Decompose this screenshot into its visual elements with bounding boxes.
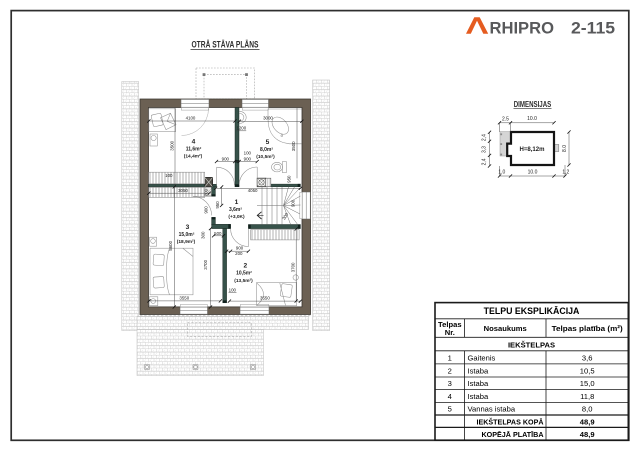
svg-text:10.0: 10.0: [527, 116, 537, 122]
svg-text:48,9: 48,9: [580, 417, 595, 426]
svg-text:3700: 3700: [203, 259, 208, 269]
svg-text:5: 5: [266, 139, 270, 146]
svg-text:900: 900: [222, 156, 230, 161]
svg-text:(+3,0K): (+3,0K): [228, 214, 245, 220]
svg-text:10,5m²: 10,5m²: [236, 271, 252, 277]
svg-text:3550: 3550: [260, 296, 270, 301]
svg-text:4: 4: [192, 139, 196, 146]
svg-text:Vannas istaba: Vannas istaba: [468, 405, 516, 414]
svg-text:8.0: 8.0: [562, 145, 568, 152]
svg-text:1: 1: [235, 199, 239, 206]
svg-text:100: 100: [165, 173, 173, 178]
svg-text:KOPĒJĀ PLATĪBA: KOPĒJĀ PLATĪBA: [482, 430, 544, 439]
svg-text:3: 3: [448, 379, 452, 388]
svg-text:Istaba: Istaba: [468, 366, 489, 375]
svg-text:Telpas platība (m²): Telpas platība (m²): [552, 324, 623, 333]
svg-text:(14,4m²): (14,4m²): [184, 154, 203, 160]
svg-text:48,9: 48,9: [580, 430, 595, 439]
svg-text:2.5: 2.5: [502, 116, 509, 122]
svg-text:8,0m²: 8,0m²: [260, 147, 273, 153]
svg-text:Nosaukums: Nosaukums: [484, 324, 527, 333]
svg-text:300: 300: [200, 231, 205, 239]
svg-text:10,5: 10,5: [580, 366, 595, 375]
svg-text:H=8,12m: H=8,12m: [520, 146, 545, 153]
svg-text:950: 950: [287, 175, 292, 183]
svg-text:100: 100: [229, 287, 237, 292]
svg-text:(10,5m²): (10,5m²): [256, 154, 275, 160]
svg-text:3: 3: [186, 224, 190, 231]
svg-text:IEKŠTELPAS KOPĀ: IEKŠTELPAS KOPĀ: [477, 417, 544, 426]
svg-text:15,0: 15,0: [580, 379, 595, 388]
svg-text:500: 500: [214, 231, 222, 236]
svg-text:RHIPRO: RHIPRO: [490, 19, 555, 38]
svg-text:3500: 3500: [169, 140, 174, 150]
svg-text:5600: 5600: [168, 240, 173, 250]
svg-text:IEKŠTELPAS: IEKŠTELPAS: [508, 341, 555, 350]
svg-text:Istaba: Istaba: [468, 379, 489, 388]
svg-text:11,6m²: 11,6m²: [186, 147, 202, 153]
svg-text:900: 900: [244, 156, 252, 161]
svg-text:DIMENSIJAS: DIMENSIJAS: [514, 100, 552, 109]
svg-text:1,0: 1,0: [498, 170, 505, 176]
svg-text:900: 900: [203, 206, 208, 214]
svg-text:Gaitenis: Gaitenis: [468, 353, 496, 362]
svg-text:3000: 3000: [263, 116, 273, 121]
svg-text:Nr.: Nr.: [445, 328, 455, 337]
svg-text:3,6: 3,6: [582, 353, 593, 362]
svg-text:10.0: 10.0: [528, 170, 538, 176]
svg-text:1,2: 1,2: [562, 170, 569, 176]
svg-text:3,6m²: 3,6m²: [229, 207, 242, 213]
svg-text:TELPU EKSPLIKĀCIJA: TELPU EKSPLIKĀCIJA: [484, 306, 580, 316]
svg-text:900: 900: [291, 199, 296, 207]
svg-text:3550: 3550: [179, 296, 189, 301]
svg-text:8,0: 8,0: [582, 405, 593, 414]
svg-text:4: 4: [448, 392, 452, 401]
svg-text:200: 200: [235, 251, 243, 256]
svg-text:(18,9m²): (18,9m²): [177, 239, 196, 245]
svg-text:OTRĀ STĀVA PLĀNS: OTRĀ STĀVA PLĀNS: [192, 40, 259, 50]
svg-text:2-115: 2-115: [571, 19, 615, 38]
svg-text:1: 1: [448, 353, 452, 362]
svg-text:3700: 3700: [290, 262, 295, 272]
svg-text:4050: 4050: [248, 188, 258, 193]
svg-text:3050: 3050: [178, 188, 188, 193]
svg-text:15,0m²: 15,0m²: [179, 232, 195, 238]
svg-text:900: 900: [236, 246, 244, 251]
svg-text:11,8: 11,8: [580, 392, 594, 401]
svg-text:100: 100: [244, 151, 252, 156]
svg-text:2: 2: [243, 263, 247, 270]
svg-text:2,4: 2,4: [481, 134, 487, 141]
svg-text:700: 700: [203, 188, 208, 196]
svg-text:2: 2: [448, 366, 452, 375]
svg-text:3,3: 3,3: [481, 146, 487, 153]
svg-text:950: 950: [215, 201, 220, 209]
svg-text:2,4: 2,4: [481, 158, 487, 165]
svg-text:3500: 3500: [291, 141, 296, 151]
svg-text:(13,5m²): (13,5m²): [234, 278, 253, 284]
svg-text:5: 5: [448, 405, 452, 414]
svg-text:Istaba: Istaba: [468, 392, 489, 401]
svg-text:4100: 4100: [186, 116, 196, 121]
svg-text:1200: 1200: [236, 125, 246, 130]
